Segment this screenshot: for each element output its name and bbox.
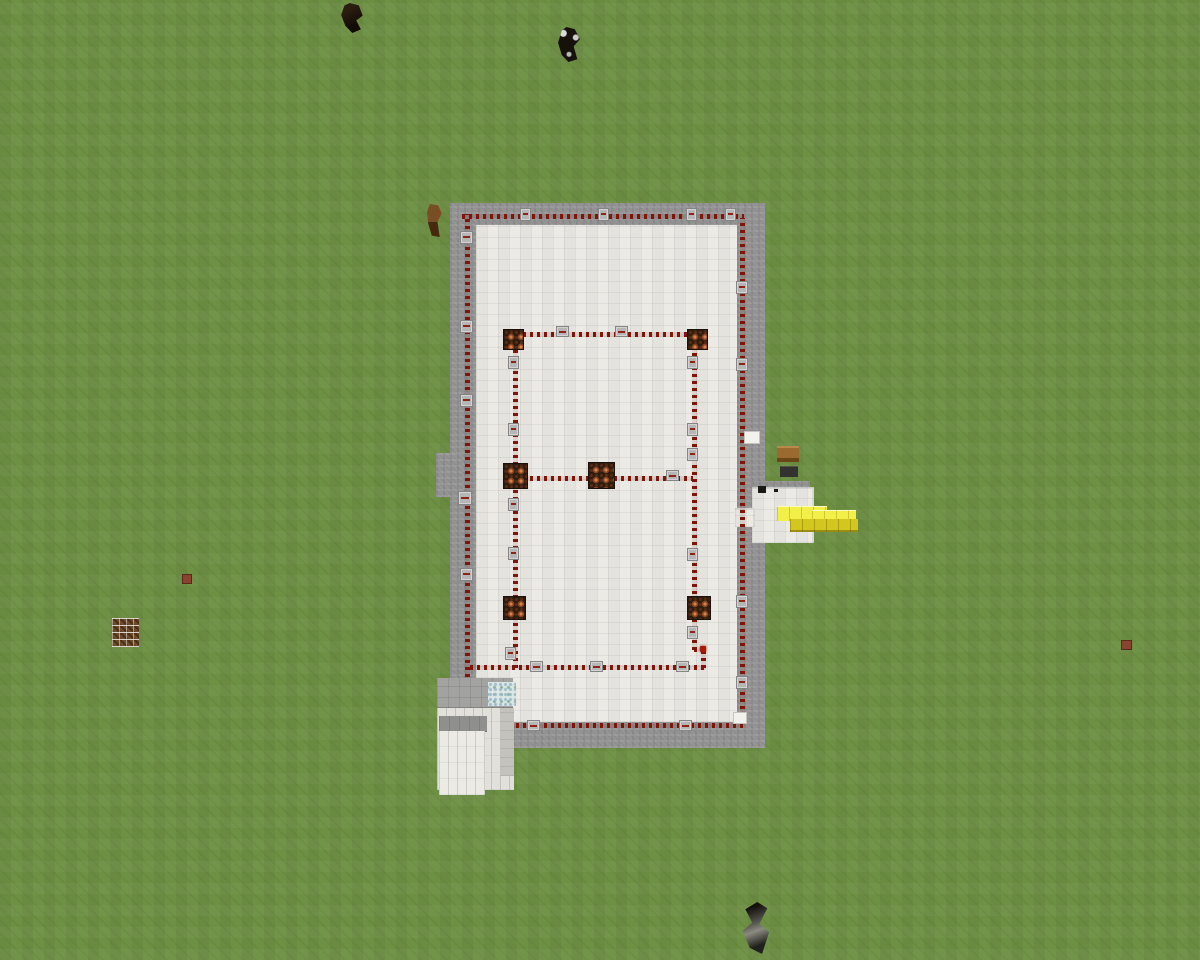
repeater <box>687 548 698 561</box>
frosted-patch <box>488 682 516 706</box>
redstone-loop-left <box>465 214 470 726</box>
repeater <box>508 356 519 369</box>
black-white-mob <box>556 27 582 62</box>
game-viewport[interactable] <box>0 0 1200 960</box>
repeater <box>598 208 609 221</box>
repeater <box>458 491 472 505</box>
repeater <box>508 547 519 560</box>
repeater <box>460 231 473 244</box>
repeater <box>527 720 540 731</box>
lever-pair <box>758 486 766 493</box>
white-block <box>744 431 760 444</box>
gray-mob-south <box>733 902 777 954</box>
brown-horse <box>427 204 442 237</box>
repeater <box>615 326 628 337</box>
redstone-lamp-ne <box>687 329 708 350</box>
repeater <box>736 281 748 294</box>
wood-block <box>777 446 799 462</box>
quartz-extension-gap <box>735 508 755 527</box>
redstone-lamp-se <box>687 596 711 620</box>
repeater <box>736 358 748 371</box>
repeater <box>687 626 698 639</box>
repeater <box>679 720 692 731</box>
repeater <box>530 661 543 672</box>
repeater <box>508 498 519 511</box>
repeater <box>505 647 516 660</box>
redstone-lamp-mid-west <box>503 463 528 489</box>
repeater <box>687 423 698 436</box>
repeater <box>460 394 473 407</box>
quartz-step-roof <box>439 716 487 732</box>
item-frames-cluster <box>112 618 139 647</box>
redstone-torch <box>700 646 706 652</box>
repeater <box>687 448 698 461</box>
repeater <box>556 326 569 337</box>
repeater <box>520 208 531 221</box>
repeater <box>736 676 748 689</box>
dark-mob-north <box>338 3 364 33</box>
repeater <box>736 595 748 608</box>
redstone-lamp-sw <box>503 596 526 620</box>
repeater <box>687 356 698 369</box>
repeater <box>686 208 697 221</box>
repeater <box>460 568 473 581</box>
quartz-step-face <box>439 731 485 795</box>
redstone-lamp-mid-center <box>588 462 615 489</box>
repeater <box>676 661 689 672</box>
quartz-tower-side <box>500 708 514 776</box>
repeater <box>725 208 736 221</box>
anvil-block <box>780 466 798 477</box>
white-block <box>733 712 747 724</box>
repeater <box>666 470 679 481</box>
repeater <box>508 423 519 436</box>
gold-arm-side <box>790 519 858 532</box>
redstone-wire-row-top <box>523 332 689 337</box>
dropped-item <box>182 574 192 584</box>
repeater <box>460 320 473 333</box>
repeater <box>590 661 603 672</box>
dropped-item <box>1121 640 1132 650</box>
redstone-wire-row-bottom <box>470 665 706 670</box>
redstone-lamp-nw <box>503 329 524 350</box>
